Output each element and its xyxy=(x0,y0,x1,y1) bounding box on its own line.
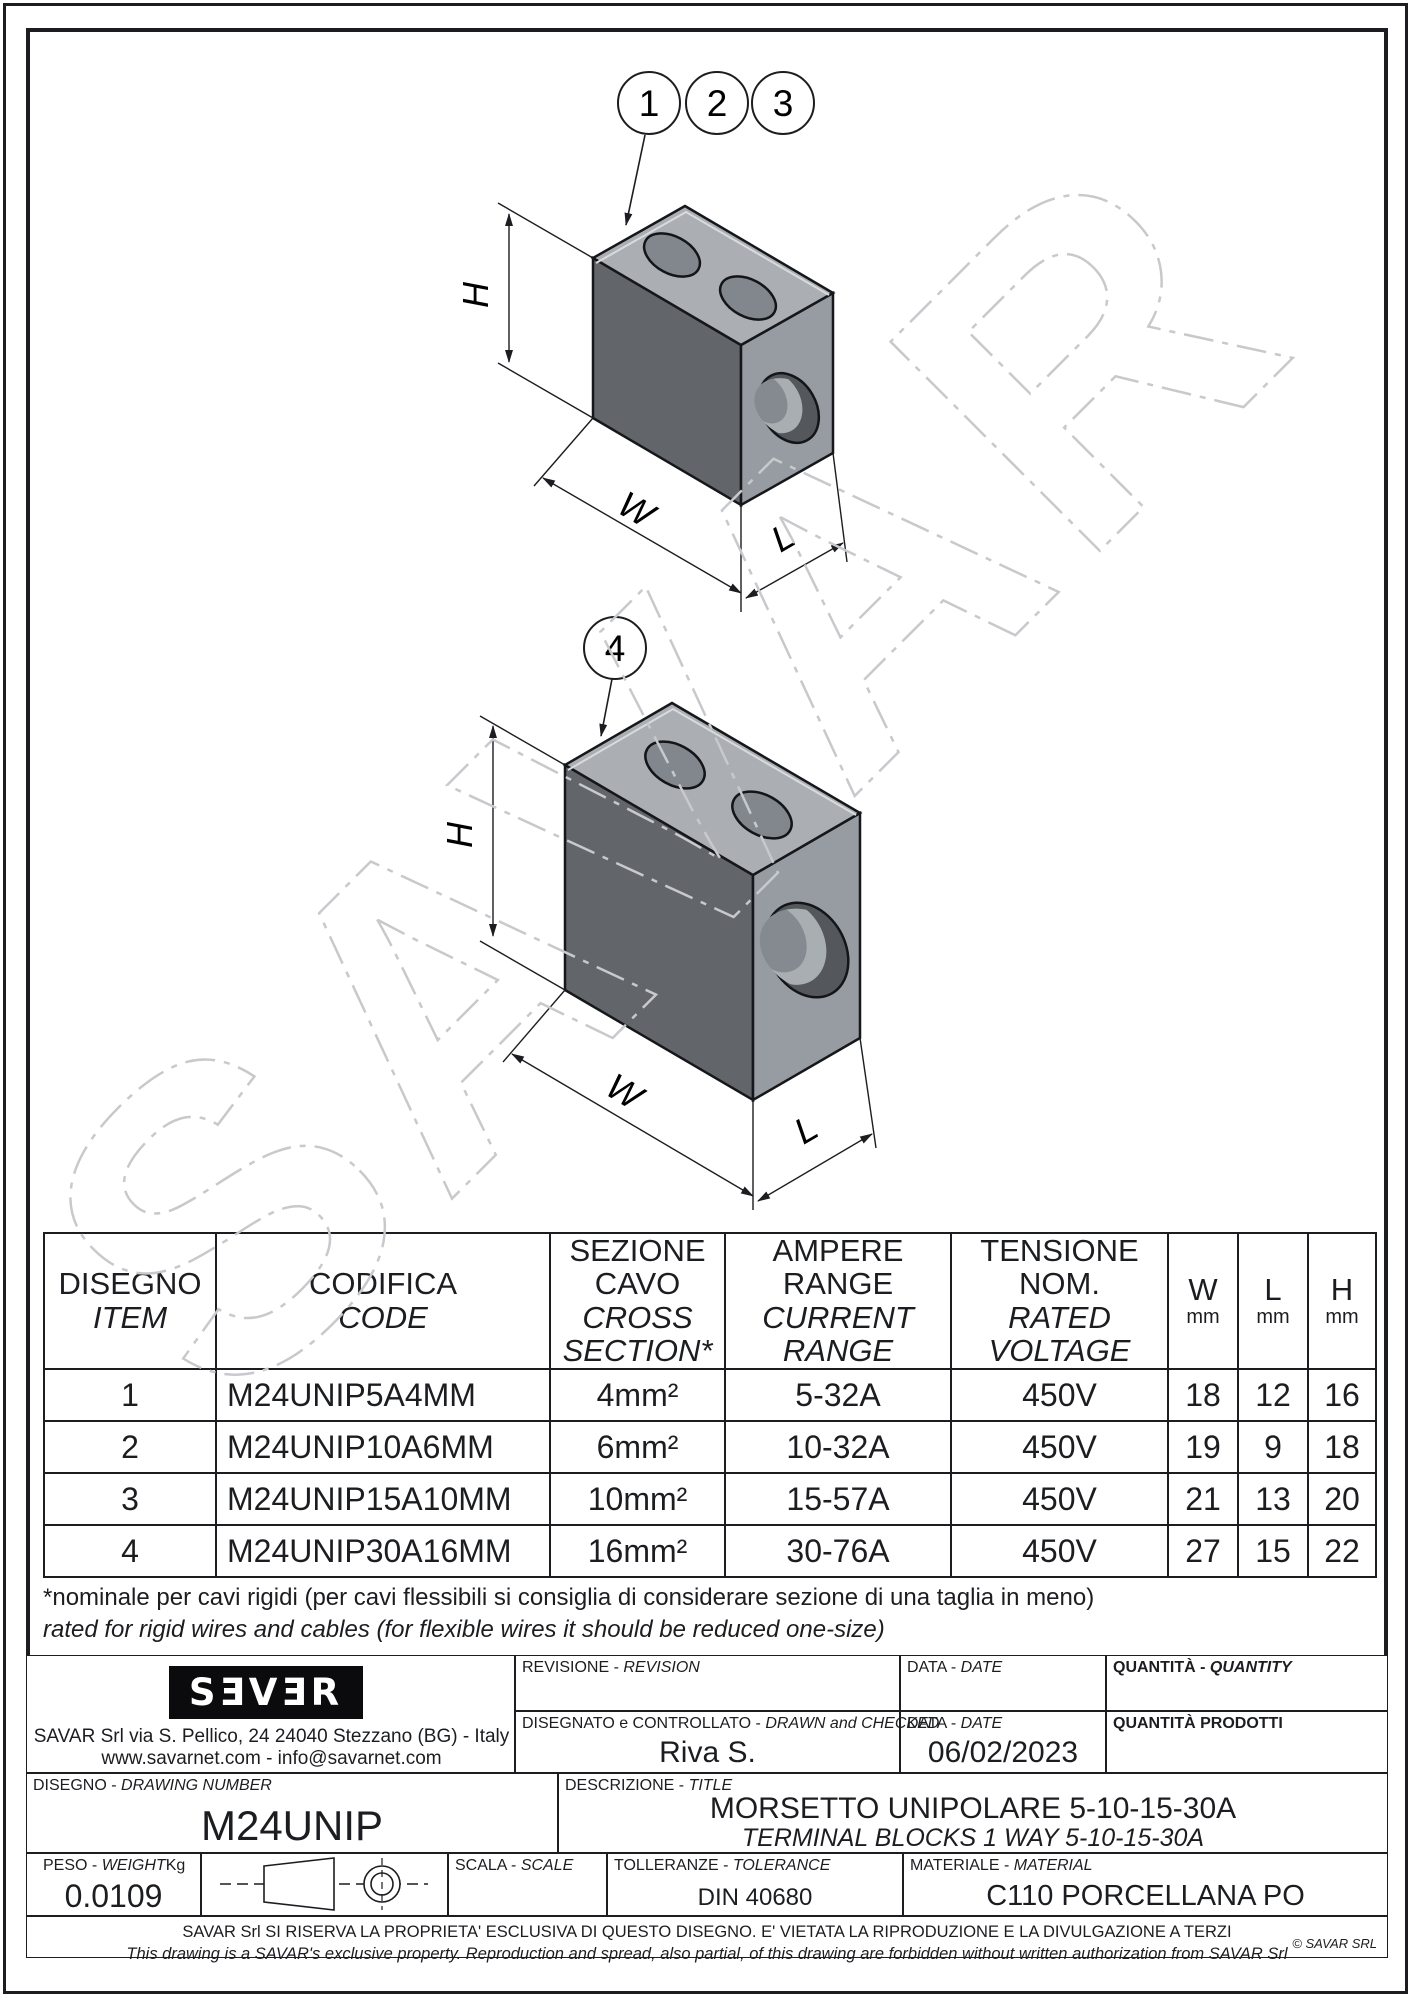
spec-table: DISEGNOITEM CODIFICACODE SEZIONECAVO CRO… xyxy=(43,1232,1377,1578)
col-header-h: Hmm xyxy=(1308,1233,1376,1369)
quantity-produced-label: QUANTITÀ PRODOTTI xyxy=(1113,1715,1283,1733)
title-block: SƎVƎR SAVAR Srl via S. Pellico, 24 24040… xyxy=(26,1655,1388,1958)
col-header-item: DISEGNOITEM xyxy=(44,1233,216,1369)
date-label: DATA - DATE xyxy=(907,1659,1002,1677)
cell-h: 18 xyxy=(1308,1421,1376,1473)
disclaimer-english: This drawing is a SAVAR's exclusive prop… xyxy=(27,1943,1387,1965)
disclaimer-italian: SAVAR Srl SI RISERVA LA PROPRIETA' ESCLU… xyxy=(27,1921,1387,1943)
material-cell: MATERIALE - MATERIAL C110 PORCELLANA PO xyxy=(903,1853,1388,1916)
cell-ampere: 15-57A xyxy=(725,1473,951,1525)
col-header-w: Wmm xyxy=(1168,1233,1238,1369)
tolerance-label: TOLLERANZE - TOLERANCE xyxy=(614,1857,830,1875)
block1-dim-h-label: H xyxy=(455,281,496,308)
cell-item: 2 xyxy=(44,1421,216,1473)
tolerance-value: DIN 40680 xyxy=(608,1884,902,1912)
drawing-sheet: 1 2 3 H W L xyxy=(0,0,1414,2000)
drawn-by-label: DISEGNATO e CONTROLLATO - DRAWN and CHEC… xyxy=(522,1715,939,1733)
material-value: C110 PORCELLANA PO xyxy=(904,1880,1387,1913)
cell-item: 4 xyxy=(44,1525,216,1577)
balloon-2-number: 2 xyxy=(707,83,728,124)
col-header-section: SEZIONECAVO CROSSSECTION* xyxy=(550,1233,725,1369)
date-cell: DATA - DATE 06/02/2023 xyxy=(900,1711,1106,1773)
balloon4-leader xyxy=(601,679,612,736)
balloon-4-number: 4 xyxy=(605,628,626,669)
quantity-produced-cell: QUANTITÀ PRODOTTI xyxy=(1106,1711,1388,1773)
date-value: 06/02/2023 xyxy=(901,1736,1105,1770)
savar-logo: SƎVƎR xyxy=(169,1666,363,1719)
first-angle-projection-icon xyxy=(202,1854,446,1914)
cell-item: 1 xyxy=(44,1369,216,1421)
revision-date-cell: DATA - DATE xyxy=(900,1655,1106,1711)
block4-dim-h-label: H xyxy=(439,821,480,848)
footnote-italian: *nominale per cavi rigidi (per cavi fles… xyxy=(43,1582,1094,1614)
col-header-l: Lmm xyxy=(1238,1233,1308,1369)
cell-code: M24UNIP15A10MM xyxy=(216,1473,550,1525)
tolerance-cell: TOLLERANZE - TOLERANCE DIN 40680 xyxy=(607,1853,903,1916)
drawing-number-value: M24UNIP xyxy=(27,1802,557,1850)
block1-dim-w-label: W xyxy=(611,483,664,537)
col-header-ampere: AMPERERANGE CURRENTRANGE xyxy=(725,1233,951,1369)
cell-voltage: 450V xyxy=(951,1369,1168,1421)
scale-cell: SCALA - SCALE xyxy=(448,1853,607,1916)
drawn-by-cell: DISEGNATO e CONTROLLATO - DRAWN and CHEC… xyxy=(515,1711,900,1773)
cell-section: 4mm² xyxy=(550,1369,725,1421)
description-cell: DESCRIZIONE - TITLE MORSETTO UNIPOLARE 5… xyxy=(558,1773,1388,1853)
company-contacts: www.savarnet.com - info@savarnet.com xyxy=(27,1748,516,1771)
revision-cell: REVISIONE - REVISION xyxy=(515,1655,900,1711)
isometric-drawing: 1 2 3 H W L xyxy=(0,0,1414,1240)
date-label: DATA - DATE xyxy=(907,1715,1002,1733)
balloon1-leader xyxy=(626,135,645,225)
cell-voltage: 450V xyxy=(951,1421,1168,1473)
cell-code: M24UNIP5A4MM xyxy=(216,1369,550,1421)
cell-h: 22 xyxy=(1308,1525,1376,1577)
savar-logo-text: SƎVƎR xyxy=(189,1674,343,1711)
table-row: 1 M24UNIP5A4MM 4mm² 5-32A 450V 18 12 16 xyxy=(44,1369,1376,1421)
cell-h: 20 xyxy=(1308,1473,1376,1525)
projection-symbol-cell xyxy=(201,1853,448,1916)
drawing-number-label: DISEGNO - DRAWING NUMBER xyxy=(33,1777,272,1795)
cell-section: 16mm² xyxy=(550,1525,725,1577)
cell-l: 15 xyxy=(1238,1525,1308,1577)
block1-dim-l-label: L xyxy=(764,514,802,560)
cell-l: 12 xyxy=(1238,1369,1308,1421)
cell-ampere: 5-32A xyxy=(725,1369,951,1421)
disclaimer-cell: SAVAR Srl SI RISERVA LA PROPRIETA' ESCLU… xyxy=(26,1916,1388,1958)
weight-cell: PESO - WEIGHTKg 0.0109 xyxy=(26,1853,201,1916)
terminal-block-1 xyxy=(593,206,833,505)
balloon-3-number: 3 xyxy=(773,83,794,124)
cell-h: 16 xyxy=(1308,1369,1376,1421)
spec-table-header-row: DISEGNOITEM CODIFICACODE SEZIONECAVO CRO… xyxy=(44,1233,1376,1369)
table-row: 4 M24UNIP30A16MM 16mm² 30-76A 450V 27 15… xyxy=(44,1525,1376,1577)
disclaimer-text: SAVAR Srl SI RISERVA LA PROPRIETA' ESCLU… xyxy=(27,1917,1387,1966)
cell-ampere: 30-76A xyxy=(725,1525,951,1577)
cell-section: 6mm² xyxy=(550,1421,725,1473)
description-italian: MORSETTO UNIPOLARE 5-10-15-30A xyxy=(559,1792,1387,1826)
table-row: 3 M24UNIP15A10MM 10mm² 15-57A 450V 21 13… xyxy=(44,1473,1376,1525)
cell-l: 9 xyxy=(1238,1421,1308,1473)
drawn-by-value: Riva S. xyxy=(516,1736,899,1770)
cell-item: 3 xyxy=(44,1473,216,1525)
revision-label: REVISIONE - REVISION xyxy=(522,1659,700,1677)
block4-dim-w-label: W xyxy=(599,1065,652,1119)
terminal-block-4 xyxy=(565,703,865,1100)
footnote-english: rated for rigid wires and cables (for fl… xyxy=(43,1614,1094,1646)
drawing-number-cell: DISEGNO - DRAWING NUMBER M24UNIP xyxy=(26,1773,558,1853)
col-header-voltage: TENSIONENOM. RATEDVOLTAGE xyxy=(951,1233,1168,1369)
block4-dim-l-label: L xyxy=(787,1106,825,1152)
balloon-group-bottom: 4 xyxy=(584,617,646,736)
cell-voltage: 450V xyxy=(951,1473,1168,1525)
balloon-group-top: 1 2 3 xyxy=(618,72,814,225)
quantity-label: QUANTITÀ - QUANTITY xyxy=(1113,1659,1292,1677)
footnote: *nominale per cavi rigidi (per cavi fles… xyxy=(43,1582,1094,1645)
weight-label: PESO - WEIGHTKg xyxy=(43,1857,185,1875)
weight-value: 0.0109 xyxy=(27,1878,200,1915)
cell-l: 13 xyxy=(1238,1473,1308,1525)
description-english: TERMINAL BLOCKS 1 WAY 5-10-15-30A xyxy=(559,1824,1387,1853)
cell-code: M24UNIP30A16MM xyxy=(216,1525,550,1577)
cell-w: 18 xyxy=(1168,1369,1238,1421)
cell-w: 27 xyxy=(1168,1525,1238,1577)
company-cell: SƎVƎR SAVAR Srl via S. Pellico, 24 24040… xyxy=(26,1655,515,1773)
table-row: 2 M24UNIP10A6MM 6mm² 10-32A 450V 19 9 18 xyxy=(44,1421,1376,1473)
cell-w: 19 xyxy=(1168,1421,1238,1473)
cell-voltage: 450V xyxy=(951,1525,1168,1577)
material-label: MATERIALE - MATERIAL xyxy=(910,1857,1093,1875)
company-address: SAVAR Srl via S. Pellico, 24 24040 Stezz… xyxy=(27,1726,516,1749)
copyright-note: © SAVAR SRL xyxy=(1292,1936,1377,1951)
quantity-cell: QUANTITÀ - QUANTITY xyxy=(1106,1655,1388,1711)
scale-label: SCALA - SCALE xyxy=(455,1857,573,1875)
col-header-code: CODIFICACODE xyxy=(216,1233,550,1369)
cell-w: 21 xyxy=(1168,1473,1238,1525)
cell-section: 10mm² xyxy=(550,1473,725,1525)
cell-ampere: 10-32A xyxy=(725,1421,951,1473)
cell-code: M24UNIP10A6MM xyxy=(216,1421,550,1473)
balloon-1-number: 1 xyxy=(639,83,660,124)
